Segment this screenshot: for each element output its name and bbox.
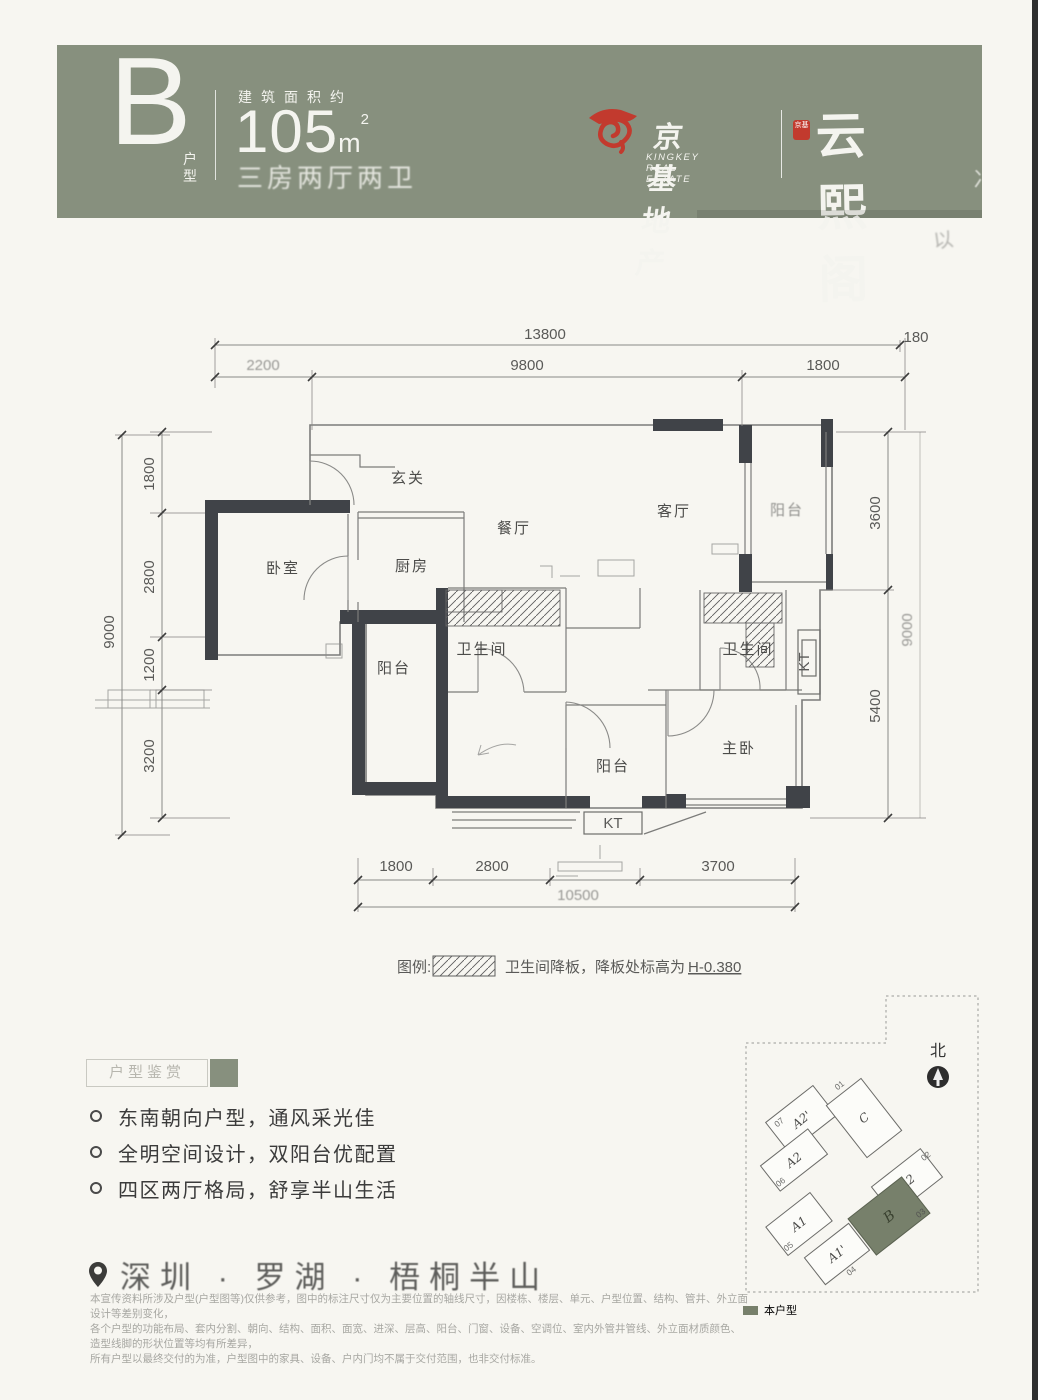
kt-label-right: KT: [796, 652, 813, 671]
plan-legend: 图例: 卫生间降板，降板处标高为 H-0.380: [397, 956, 741, 976]
disclaimer-line: 所有户型以最终交付的为准，户型图中的家具、设备、户内门均不属于交付范围，也非交付…: [90, 1352, 750, 1367]
room-bath2: 卫生间: [722, 641, 773, 658]
brand-divider: [781, 110, 782, 178]
site-keyplan: 北 A2' 07 A2 06 C 01 A2 02: [738, 988, 1038, 1333]
bullet-ring-icon: [90, 1146, 102, 1158]
bullet-ring-icon: [90, 1182, 102, 1194]
dim-left-seg0: 1800: [141, 457, 158, 490]
dim-left-seg1: 2800: [141, 560, 158, 593]
legend-hatch-swatch: [433, 956, 495, 976]
room-balcony2: 阳台: [596, 758, 630, 775]
location-line: 深圳 · 罗湖 · 梧桐半山: [88, 1252, 549, 1297]
dim-left-seg3: 3200: [141, 739, 158, 772]
building-no-label: 01: [833, 1078, 847, 1092]
bullet-ring-icon: [90, 1110, 102, 1122]
kt-shafts: [584, 630, 820, 834]
brochure-page: B 户型 建筑面积约 105m2 三房两厅两卫 京基地产 KINGKEY REA…: [0, 0, 1038, 1400]
dim-top-seg2: 1800: [806, 357, 839, 374]
site-buildings: A2' 07 A2 06 C 01 A2 02 B 03: [761, 1068, 947, 1292]
keyplan-legend-swatch: [743, 1306, 758, 1315]
room-master: 主卧: [722, 740, 756, 757]
selling-point-row: 全明空间设计，双阳台优配置: [90, 1134, 550, 1170]
dim-top-overall: 13800: [524, 326, 566, 343]
dim-top-seg1: 9800: [510, 357, 543, 374]
disclaimer-line: 各个户型的功能布局、套内分割、朝向、结构、面积、面宽、进深、层高、阳台、门窗、设…: [90, 1322, 750, 1352]
area-superscript: 2: [361, 111, 369, 128]
selling-point-row: 四区两厅格局，舒享半山生活: [90, 1170, 550, 1206]
keyplan-legend-label: 本户型: [764, 1303, 797, 1317]
selling-point-text: 东南朝向户型，通风采光佳: [118, 1102, 376, 1131]
room-bedroom: 卧室: [266, 560, 300, 577]
selling-point-text: 全明空间设计，双阳台优配置: [118, 1138, 398, 1167]
layout-description: 三房两厅两卫: [237, 158, 417, 195]
selling-points: 东南朝向户型，通风采光佳 全明空间设计，双阳台优配置 四区两厅格局，舒享半山生活: [90, 1098, 550, 1206]
scan-edge-strip: [1032, 0, 1038, 1400]
dim-left-seg2: 1200: [141, 648, 158, 681]
brand-name-en: KINGKEY REAL ESTATE: [646, 152, 699, 185]
room-balcony1: 阳台: [377, 660, 411, 677]
area-value: 105: [235, 98, 338, 165]
project-name: 云熙阁: [815, 96, 873, 313]
dim-top-seg0: 2200: [246, 357, 279, 374]
ink-splatter: 冫: [973, 162, 999, 192]
dim-left-overall: 9000: [101, 615, 118, 648]
header-band: B 户型 建筑面积约 105m2 三房两厅两卫 京基地产 KINGKEY REA…: [57, 45, 982, 218]
appreciation-title-box: 户型鉴赏: [86, 1059, 208, 1087]
brand-name-cn: 京基地产: [633, 114, 688, 282]
area-value-row: 105m2: [235, 97, 369, 166]
room-entry: 玄关: [391, 470, 425, 487]
north-label: 北: [930, 1042, 946, 1060]
scan-smudge: 以: [931, 223, 955, 255]
header-divider: [215, 90, 216, 180]
room-kitchen: 厨房: [395, 558, 429, 575]
brand-seal: 京基: [793, 120, 810, 140]
room-balcony-right: 阳台: [770, 502, 804, 519]
dim-right-seg1: 5400: [867, 689, 884, 722]
dim-top-edge: 180: [903, 329, 928, 346]
selling-point-text: 四区两厅格局，舒享半山生活: [118, 1174, 398, 1203]
dim-right-seg0: 3600: [867, 496, 884, 529]
dim-bottom-seg1: 2800: [475, 858, 508, 875]
room-living: 客厅: [657, 503, 691, 520]
disclaimer: 本宣传资料所涉及户型(户型图等)仅供参考，图中的标注尺寸仅为主要位置的轴线尺寸，…: [90, 1292, 750, 1367]
dim-bottom-seg0: 1800: [379, 858, 412, 875]
dim-right-overall: 9000: [899, 613, 916, 646]
room-dining: 餐厅: [497, 520, 531, 537]
unit-type-letter: B: [109, 31, 192, 173]
kingkey-logo-icon: [585, 104, 641, 160]
kt-label-bottom: KT: [603, 815, 622, 832]
appreciation-accent-square: [210, 1059, 238, 1087]
disclaimer-line: 本宣传资料所涉及户型(户型图等)仅供参考，图中的标注尺寸仅为主要位置的轴线尺寸，…: [90, 1292, 750, 1322]
unit-type-suffix: 户型: [183, 151, 198, 185]
room-bath1: 卫生间: [456, 641, 507, 658]
area-unit: m: [338, 128, 361, 158]
selling-point-row: 东南朝向户型，通风采光佳: [90, 1098, 550, 1134]
dim-bottom-overall: 10500: [557, 887, 599, 904]
map-pin-icon: [88, 1261, 108, 1289]
location-text: 深圳 · 罗湖 · 梧桐半山: [120, 1252, 549, 1297]
legend-prefix: 图例:: [397, 959, 431, 976]
floor-plan: KT KT 玄关 餐厅 客厅 阳台 卧室 厨房 卫生间 阳台 卫生间 主卧 阳台: [80, 300, 1000, 1000]
legend-value: H-0.380: [688, 959, 741, 976]
legend-text: 卫生间降板，降板处标高为: [505, 958, 685, 976]
dim-bottom-seg2: 3700: [701, 858, 734, 875]
